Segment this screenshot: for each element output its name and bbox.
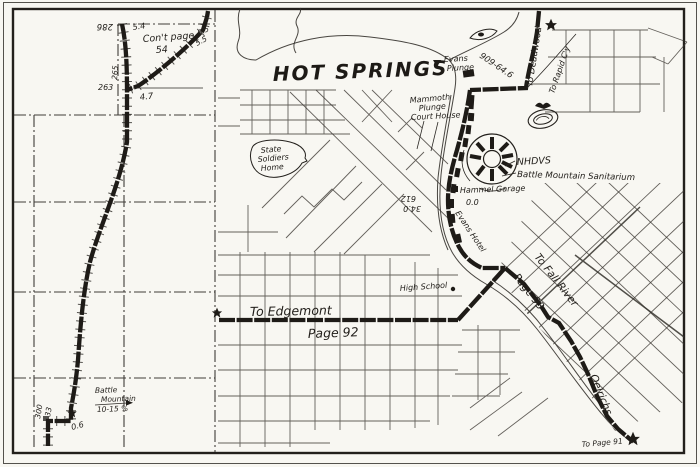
pond-dot-icon (478, 33, 484, 37)
evans-plunge-label-2: Plunge (447, 63, 475, 73)
page-92-label: Page 92 (308, 324, 359, 341)
mileage-0-0: 0.0 (466, 198, 479, 207)
sanitarium-sunburst-icon (462, 134, 517, 191)
mileage-300: 300 (33, 403, 44, 419)
racetrack-oval-icon (526, 107, 559, 131)
high-school-label: High School (400, 281, 449, 293)
soldiers-home-label-3: Home (260, 162, 284, 173)
to-edgemont-label: To Edgemont (250, 303, 333, 319)
oelrichs-label: Oelrichs (587, 373, 614, 418)
mileage-34-0: 34.0 (403, 204, 421, 213)
continued-page-number: 54 (155, 44, 168, 56)
strip-route-main (48, 24, 127, 446)
mileage-263: 263 (98, 83, 113, 92)
route-star-deadwood-icon (545, 19, 557, 31)
battle-mountain-grade: 10-15 % (97, 404, 129, 414)
hot-springs-map: 286 5.4 Con't page 54 6.5 5.5 265 263 4.… (0, 0, 700, 467)
strip-route-ticks (48, 24, 127, 446)
building-rect (454, 168, 460, 178)
continued-page-label: Con't page (142, 30, 194, 45)
to-deadwood-label: To Deadwood (525, 26, 544, 88)
mileage-33: 33 (43, 406, 54, 417)
mileage-286: 286 (96, 21, 113, 31)
street-grid-northwest (218, 90, 350, 134)
route-star-oelrichs-icon (626, 432, 640, 445)
map-title: HOT SPRINGS (272, 56, 449, 86)
mileage-612: 612 (401, 194, 416, 203)
sanitarium-label: Battle Mountain Sanitarium (517, 170, 635, 183)
street-grid-south-transition (452, 325, 548, 436)
strip-panel: 286 5.4 Con't page 54 6.5 5.5 265 263 4.… (14, 10, 215, 452)
street-grid-southeast (292, 150, 700, 467)
building-rect (468, 113, 475, 121)
court-house-label: Court House (411, 110, 461, 122)
building-rect (449, 199, 454, 208)
to-page-91-label: To Page 91 (581, 436, 623, 449)
bird-mark-icon (535, 103, 551, 109)
mileage-265: 265 (110, 65, 120, 80)
nhdvs-label: NHDVS (517, 155, 552, 168)
route-star-edgemont-icon (212, 308, 222, 318)
scanned-map-page: 286 5.4 Con't page 54 6.5 5.5 265 263 4.… (0, 0, 700, 467)
garage-building (452, 186, 458, 192)
mileage-0-6: 0.6 (70, 420, 85, 432)
mileage-4-7: 4.7 (139, 92, 154, 103)
mileage-5-4: 5.4 (132, 21, 146, 32)
creek-squiggle (294, 8, 301, 53)
mileage-909: 909-64.6 (477, 51, 515, 81)
high-school-dot-icon (451, 287, 455, 291)
battle-mountain-label-1: Battle (95, 385, 118, 395)
city-panel: HOT SPRINGS (212, 8, 700, 467)
building-rect (458, 152, 464, 162)
garage-label: Hammel Garage (460, 184, 526, 195)
building-rect (469, 95, 475, 109)
building-rect (462, 138, 468, 148)
building-rect (465, 125, 471, 134)
